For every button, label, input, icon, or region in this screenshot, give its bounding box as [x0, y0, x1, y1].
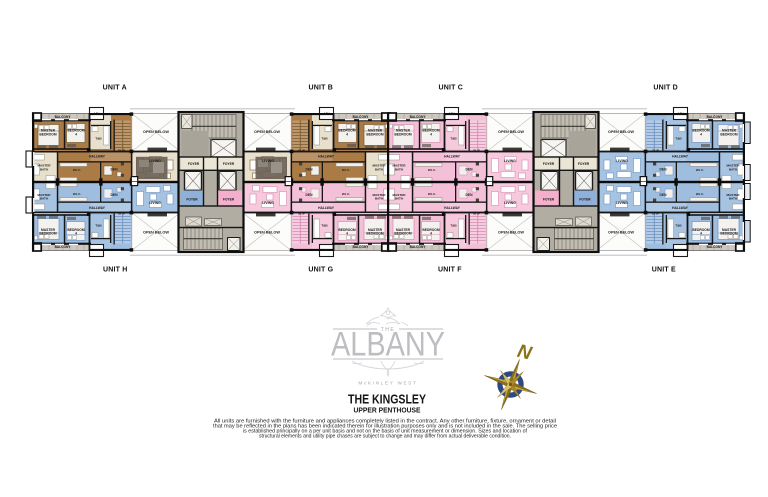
svg-text:OPEN BELOW: OPEN BELOW	[143, 231, 169, 235]
svg-text:OPEN BELOW: OPEN BELOW	[498, 231, 524, 235]
svg-text:W.I.C.: W.I.C.	[428, 192, 436, 196]
svg-text:T&B: T&B	[450, 224, 457, 228]
svg-text:4: 4	[700, 133, 702, 137]
svg-text:UNIT F: UNIT F	[438, 267, 462, 274]
svg-text:BEDROOM: BEDROOM	[366, 133, 383, 137]
svg-text:BATH: BATH	[375, 197, 384, 201]
svg-text:HALLWAY: HALLWAY	[89, 206, 106, 210]
svg-text:T&B: T&B	[675, 137, 682, 141]
svg-text:DEN: DEN	[466, 193, 474, 197]
svg-text:LIVING: LIVING	[616, 159, 628, 163]
svg-text:BATH: BATH	[40, 167, 49, 171]
svg-text:LIVING: LIVING	[504, 159, 516, 163]
svg-text:FOYER: FOYER	[578, 162, 590, 166]
svg-text:4: 4	[700, 232, 702, 236]
svg-text:W.I.C.: W.I.C.	[342, 168, 350, 172]
svg-text:structural elements and utilit: structural elements and utility pipe cha…	[259, 433, 511, 439]
svg-text:BALCONY: BALCONY	[410, 115, 427, 119]
svg-text:HALLWAY: HALLWAY	[318, 155, 335, 159]
svg-text:DN UP: DN UP	[652, 150, 659, 152]
svg-text:DN UP: DN UP	[298, 150, 305, 152]
svg-text:FOYER: FOYER	[223, 198, 235, 202]
svg-text:BALCONY: BALCONY	[353, 245, 370, 249]
svg-text:UNIT E: UNIT E	[652, 267, 676, 274]
svg-text:BEDROOM: BEDROOM	[366, 232, 383, 236]
svg-text:HALLWAY: HALLWAY	[672, 155, 689, 159]
svg-text:T&B: T&B	[95, 137, 102, 141]
svg-text:UNIT G: UNIT G	[308, 267, 333, 274]
svg-text:OPEN BELOW: OPEN BELOW	[498, 130, 524, 134]
svg-text:4: 4	[430, 232, 432, 236]
svg-text:LIVING: LIVING	[149, 159, 161, 163]
svg-text:HALLWAY: HALLWAY	[444, 206, 461, 210]
svg-text:UNIT H: UNIT H	[103, 267, 128, 274]
svg-text:ACU: ACU	[449, 248, 455, 252]
svg-text:DEN: DEN	[660, 193, 668, 197]
svg-text:BATH: BATH	[40, 197, 49, 201]
svg-text:W.I.C.: W.I.C.	[428, 168, 436, 172]
svg-text:FOYER: FOYER	[579, 198, 591, 202]
svg-text:DN UP: DN UP	[118, 150, 125, 152]
svg-text:DN UP: DN UP	[473, 214, 480, 216]
svg-text:T&B: T&B	[450, 137, 457, 141]
svg-text:ACU: ACU	[678, 248, 684, 252]
svg-text:W.I.C.: W.I.C.	[73, 192, 81, 196]
svg-text:4: 4	[75, 133, 77, 137]
svg-text:BATH: BATH	[395, 197, 404, 201]
svg-text:UPPER PENTHOUSE: UPPER PENTHOUSE	[354, 406, 421, 415]
svg-text:LIVING: LIVING	[262, 159, 274, 163]
svg-text:FOYER: FOYER	[186, 198, 198, 202]
svg-text:BEDROOM: BEDROOM	[394, 232, 411, 236]
svg-text:ACU: ACU	[94, 112, 100, 116]
svg-text:DN UP: DN UP	[118, 214, 125, 216]
svg-text:BATH: BATH	[729, 167, 738, 171]
svg-text:OPEN BELOW: OPEN BELOW	[254, 130, 280, 134]
svg-text:THE KINGSLEY: THE KINGSLEY	[348, 393, 427, 407]
svg-text:4: 4	[346, 232, 348, 236]
svg-text:FOYER: FOYER	[543, 198, 555, 202]
svg-text:HALLWAY: HALLWAY	[89, 155, 106, 159]
svg-text:DEN: DEN	[111, 193, 119, 197]
svg-text:ALBANY: ALBANY	[331, 326, 445, 364]
svg-text:ACU: ACU	[94, 248, 100, 252]
svg-text:UNIT D: UNIT D	[653, 85, 678, 92]
svg-text:LIVING: LIVING	[616, 201, 628, 205]
svg-text:BATH: BATH	[729, 197, 738, 201]
svg-text:ACU: ACU	[324, 248, 330, 252]
svg-text:T&B: T&B	[321, 137, 328, 141]
svg-text:UNIT A: UNIT A	[103, 85, 127, 92]
svg-text:HALLWAY: HALLWAY	[444, 155, 461, 159]
svg-text:LIVING: LIVING	[149, 201, 161, 205]
svg-text:BALCONY: BALCONY	[410, 245, 427, 249]
svg-text:BEDROOM: BEDROOM	[720, 232, 737, 236]
svg-text:ACU: ACU	[324, 112, 330, 116]
svg-text:HALLWAY: HALLWAY	[318, 206, 335, 210]
svg-text:BALCONY: BALCONY	[55, 115, 72, 119]
svg-text:FOYER: FOYER	[543, 162, 555, 166]
svg-text:4: 4	[346, 133, 348, 137]
svg-text:OPEN BELOW: OPEN BELOW	[608, 231, 634, 235]
svg-text:BALCONY: BALCONY	[707, 115, 724, 119]
svg-text:FOYER: FOYER	[188, 162, 200, 166]
svg-text:OPEN BELOW: OPEN BELOW	[143, 130, 169, 134]
svg-text:W.I.C.: W.I.C.	[73, 168, 81, 172]
svg-text:DEN: DEN	[111, 168, 119, 172]
svg-text:LIVING: LIVING	[504, 201, 516, 205]
svg-text:ACU: ACU	[678, 112, 684, 116]
svg-text:DEN: DEN	[306, 193, 314, 197]
svg-text:DN UP: DN UP	[473, 150, 480, 152]
svg-text:W.I.C.: W.I.C.	[696, 168, 704, 172]
svg-text:DN UP: DN UP	[298, 214, 305, 216]
svg-text:UNIT B: UNIT B	[309, 85, 334, 92]
svg-text:DN UP: DN UP	[652, 214, 659, 216]
svg-text:ACU: ACU	[449, 112, 455, 116]
svg-text:FOYER: FOYER	[223, 162, 235, 166]
svg-text:T&B: T&B	[321, 224, 328, 228]
svg-text:T&B: T&B	[675, 224, 682, 228]
svg-text:BEDROOM: BEDROOM	[39, 232, 56, 236]
svg-text:BEDROOM: BEDROOM	[39, 133, 56, 137]
svg-text:BATH: BATH	[395, 167, 404, 171]
svg-text:McKINLEY WEST: McKINLEY WEST	[358, 381, 417, 386]
svg-text:BALCONY: BALCONY	[353, 115, 370, 119]
svg-text:BATH: BATH	[375, 167, 384, 171]
svg-text:W.I.C.: W.I.C.	[696, 192, 704, 196]
svg-text:4: 4	[430, 133, 432, 137]
svg-text:OPEN BELOW: OPEN BELOW	[608, 130, 634, 134]
svg-text:BALCONY: BALCONY	[707, 245, 724, 249]
svg-text:LIVING: LIVING	[262, 201, 274, 205]
svg-text:4: 4	[75, 232, 77, 236]
svg-text:HALLWAY: HALLWAY	[672, 206, 689, 210]
svg-text:BEDROOM: BEDROOM	[394, 133, 411, 137]
svg-text:UNIT C: UNIT C	[439, 85, 464, 92]
svg-text:BEDROOM: BEDROOM	[720, 133, 737, 137]
svg-text:T&B: T&B	[95, 224, 102, 228]
svg-text:OPEN BELOW: OPEN BELOW	[254, 231, 280, 235]
svg-text:BALCONY: BALCONY	[55, 245, 72, 249]
svg-text:DEN: DEN	[306, 168, 314, 172]
svg-text:DEN: DEN	[660, 168, 668, 172]
svg-text:DEN: DEN	[466, 168, 474, 172]
svg-text:W.I.C.: W.I.C.	[342, 192, 350, 196]
